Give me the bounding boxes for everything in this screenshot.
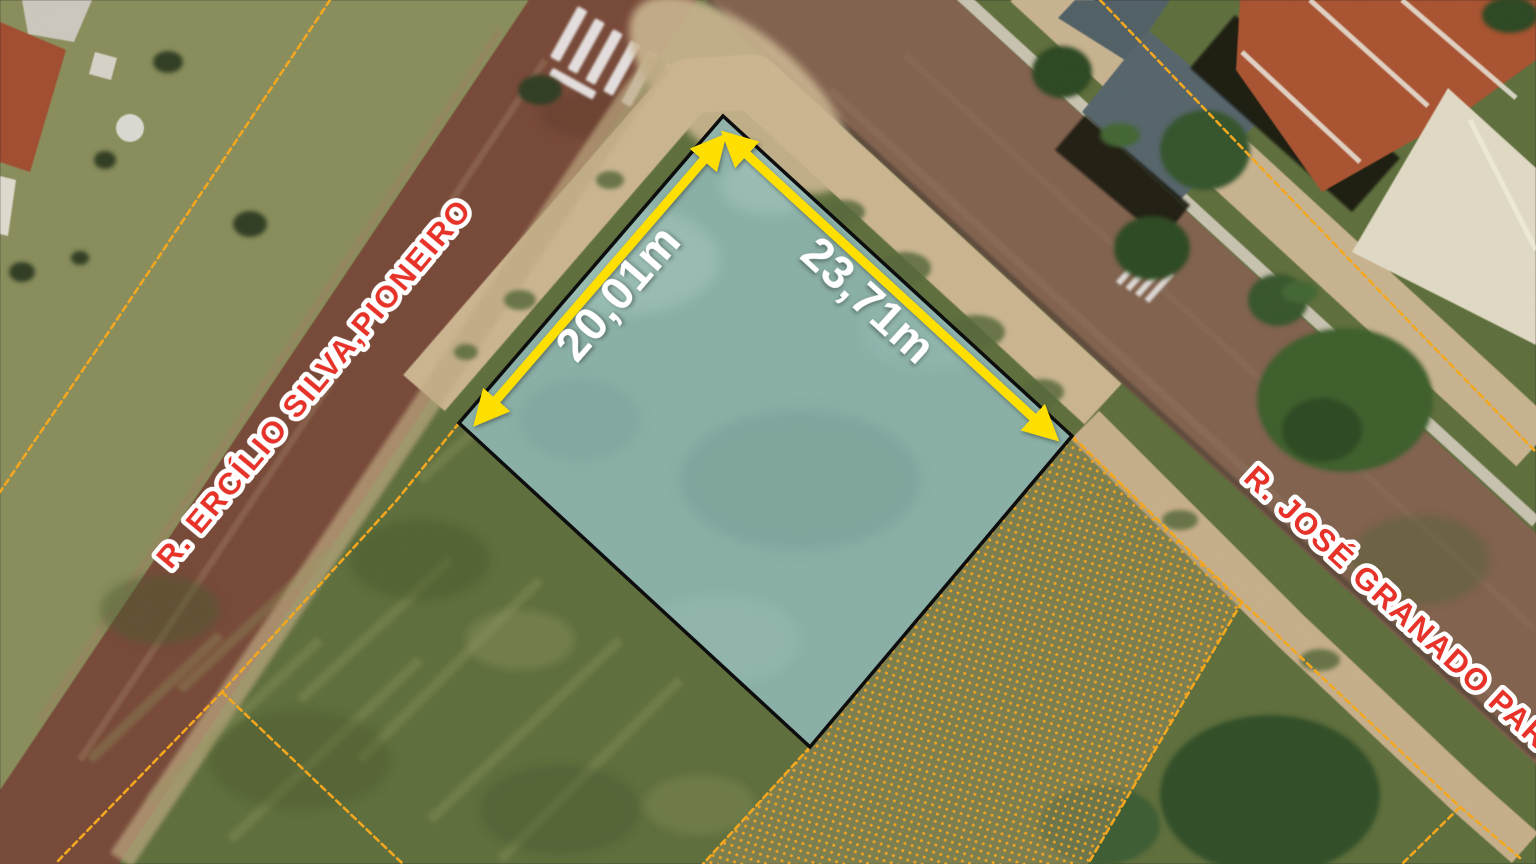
aerial-map: 20,01m 23,71m R. ERCÍLIO SILVA,PIONEIRO … (0, 0, 1536, 864)
aerial-map-canvas: 20,01m 23,71m R. ERCÍLIO SILVA,PIONEIRO … (0, 0, 1536, 864)
